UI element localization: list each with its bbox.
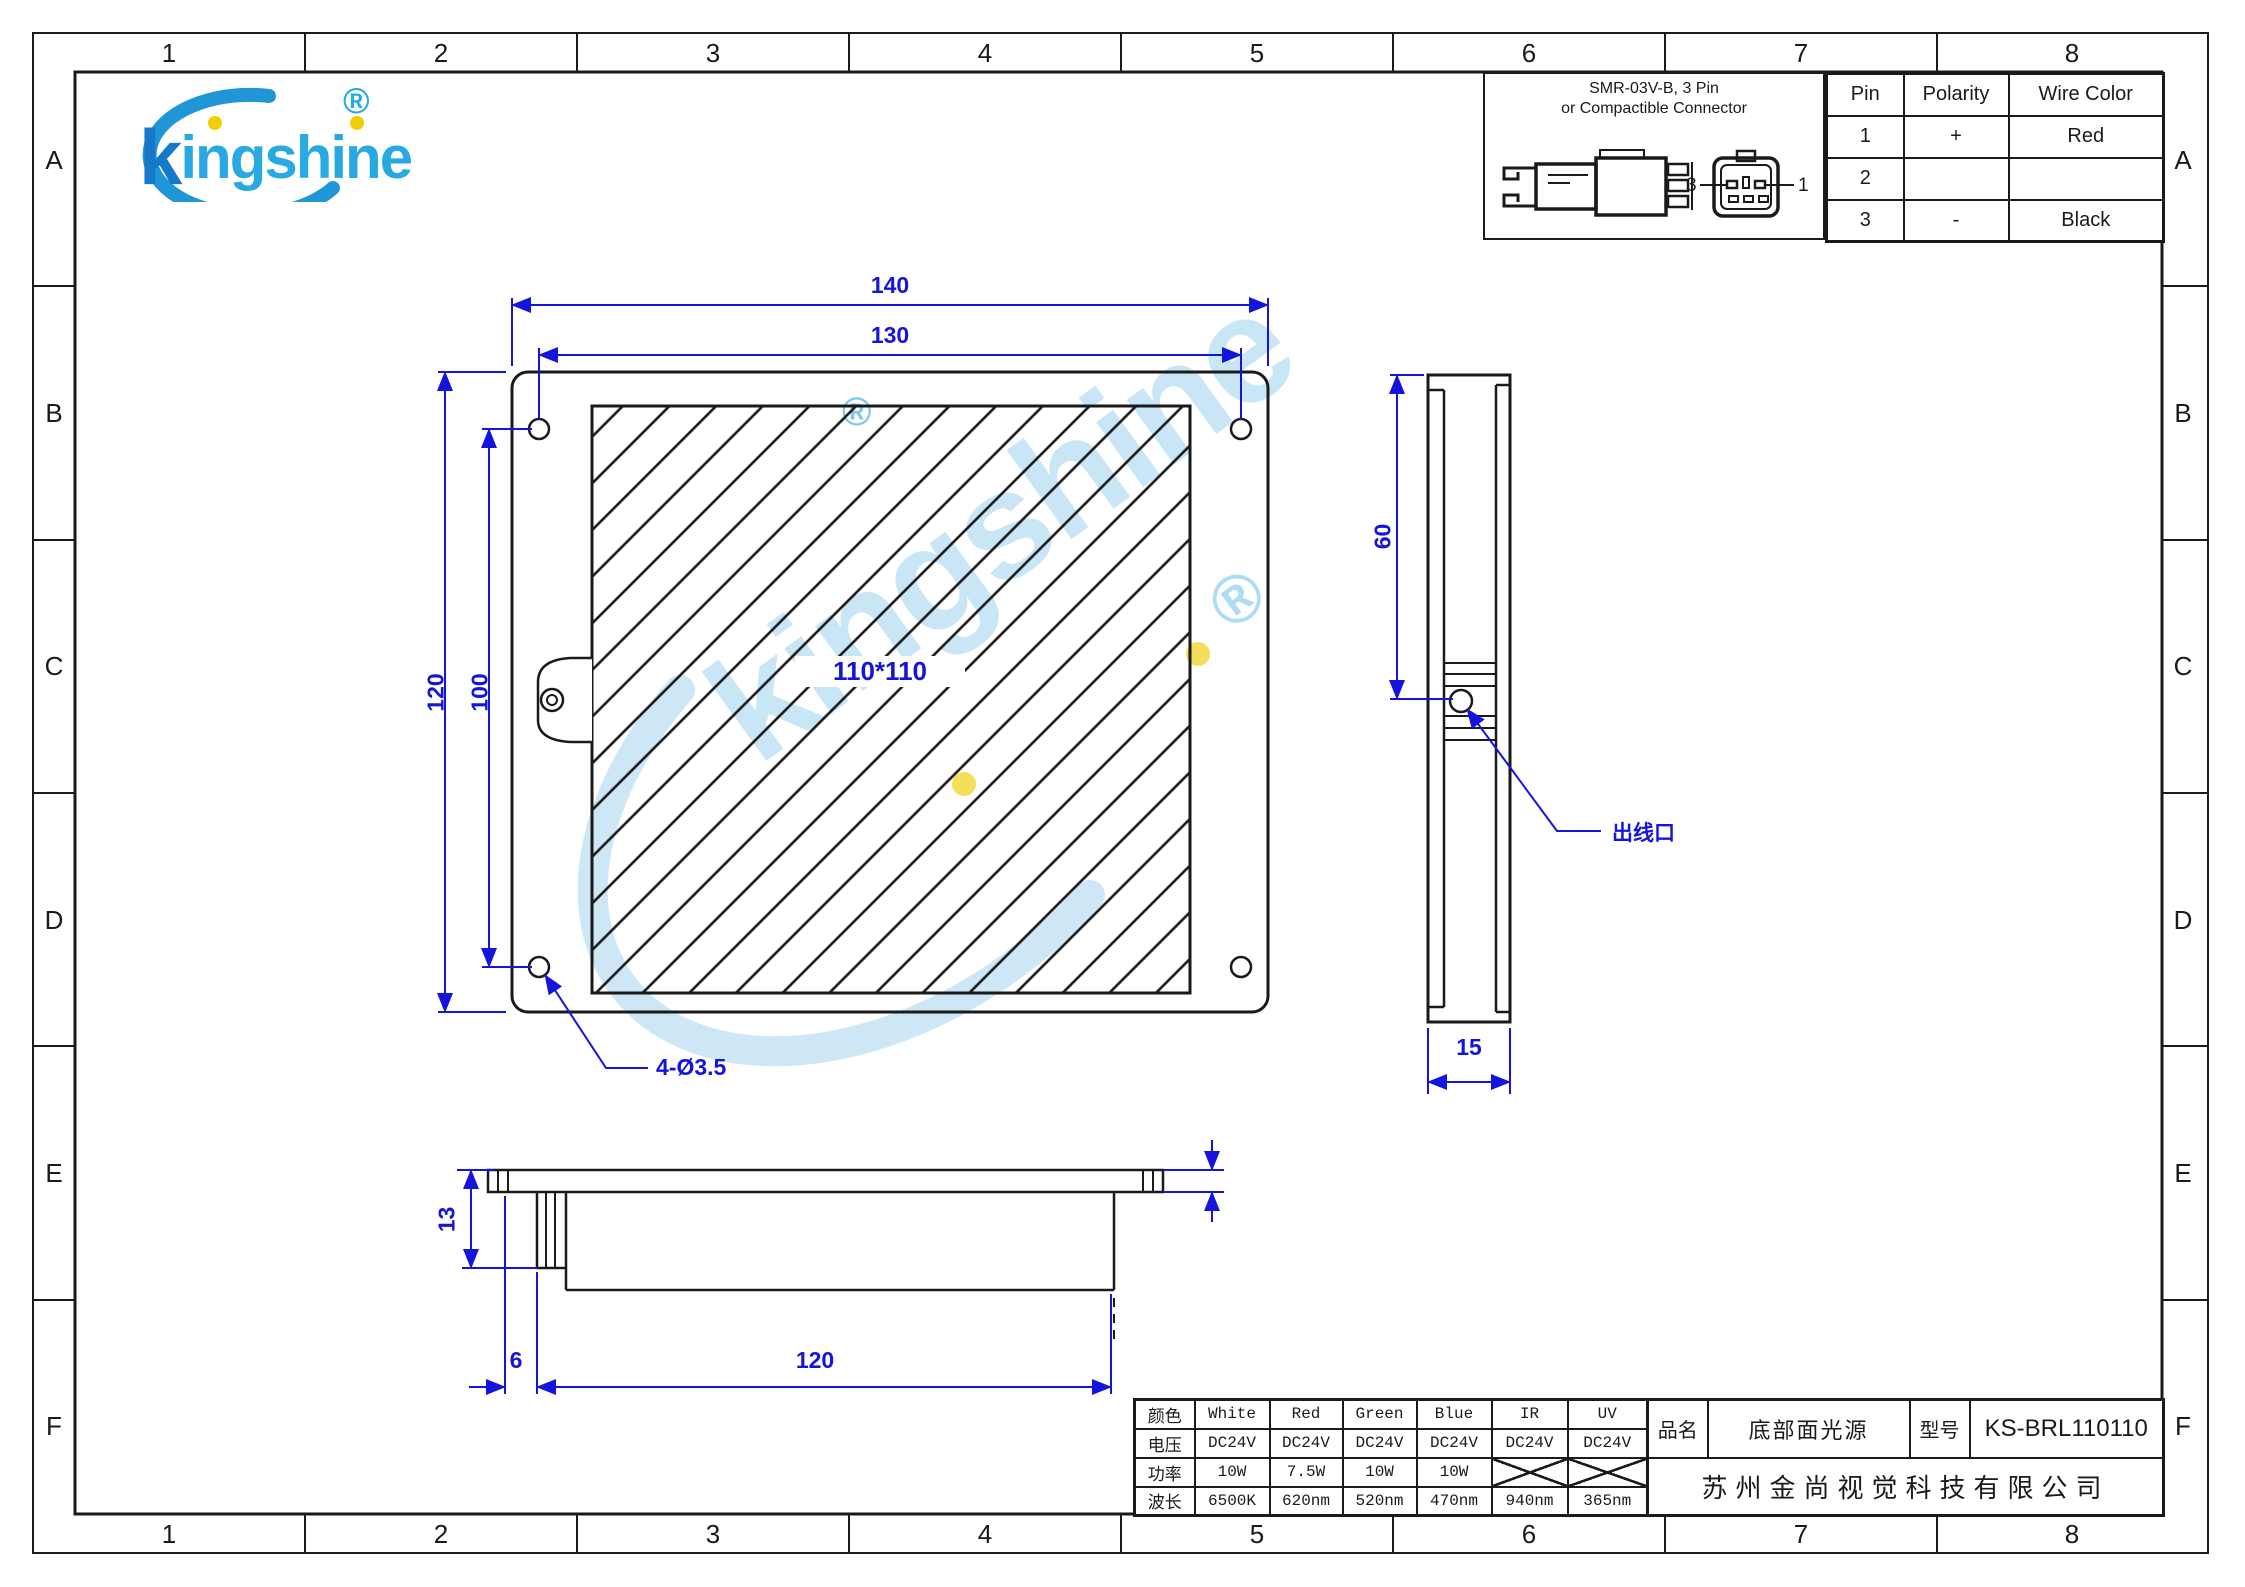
emitting-area-label: 110*110 (795, 656, 965, 687)
cell: DC24V (1568, 1429, 1648, 1458)
pin-header: Pin (1827, 74, 1904, 116)
logo-rest: ingshine (180, 124, 411, 191)
zone-row-label: A (2162, 145, 2204, 176)
cell: UV (1568, 1400, 1648, 1429)
zone-col-label: 1 (129, 1519, 209, 1550)
title-block-company-row: 苏州金尚视觉科技有限公司 (1648, 1458, 2164, 1516)
pin-table: Pin Polarity Wire Color 1 + Red 2 3 - Bl… (1825, 72, 2165, 243)
zone-col-label: 4 (945, 1519, 1025, 1550)
cell: DC24V (1417, 1429, 1492, 1458)
cell: Green (1343, 1400, 1417, 1429)
dim-15-label: 15 (1429, 1034, 1509, 1061)
zone-row-label: D (2162, 905, 2204, 936)
zone-row-label: E (2162, 1158, 2204, 1189)
zone-col-label: 2 (401, 1519, 481, 1550)
logo-i-dot (208, 116, 222, 130)
spec-table: 颜色 White Red Green Blue IR UV 电压 DC24V D… (1133, 1398, 1649, 1517)
zone-col-label: 4 (945, 38, 1025, 69)
connector-title-line2: or Compactible Connector (1485, 100, 1823, 118)
cell: 10W (1195, 1458, 1270, 1487)
company-name: 苏州金尚视觉科技有限公司 (1648, 1458, 2164, 1516)
zone-row-label: A (33, 145, 75, 176)
zone-col-label: 1 (129, 38, 209, 69)
title-block-row: 品名 底部面光源 型号 KS-BRL110110 (1648, 1400, 2164, 1458)
crossed-cell (1492, 1458, 1568, 1487)
spec-label: 波长 (1135, 1487, 1195, 1516)
cell: - (1904, 200, 2009, 242)
logo-i-dot (350, 116, 364, 130)
zone-row-label: E (33, 1158, 75, 1189)
socket-pin3-label: 3 (1686, 175, 1697, 197)
dim-13-label: 13 (434, 1180, 461, 1260)
cell: DC24V (1343, 1429, 1417, 1458)
zone-col-label: 8 (2032, 38, 2112, 69)
dim-60-label: 60 (1370, 497, 1397, 577)
bottom-view (488, 1170, 1163, 1340)
dim-130-label: 130 (840, 322, 940, 349)
cell: DC24V (1195, 1429, 1270, 1458)
spec-label: 功率 (1135, 1458, 1195, 1487)
cell: 6500K (1195, 1487, 1270, 1516)
cell: Blue (1417, 1400, 1492, 1429)
spec-color-row: 颜色 White Red Green Blue IR UV (1135, 1400, 1648, 1429)
zone-row-label: D (33, 905, 75, 936)
spec-wavelength-row: 波长 6500K 620nm 520nm 470nm 940nm 365nm (1135, 1487, 1648, 1516)
cell (1904, 158, 2009, 200)
zone-row-label: B (33, 398, 75, 429)
pin-table-row: 3 - Black (1827, 200, 2164, 242)
title-block: 品名 底部面光源 型号 KS-BRL110110 苏州金尚视觉科技有限公司 (1646, 1398, 2165, 1517)
zone-row-label: B (2162, 398, 2204, 429)
dim-120-label: 120 (423, 653, 450, 733)
cell (2009, 158, 2164, 200)
zone-row-label: C (2162, 651, 2204, 682)
cell: 470nm (1417, 1487, 1492, 1516)
front-view (512, 372, 1268, 1012)
pin-table-header-row: Pin Polarity Wire Color (1827, 74, 2164, 116)
cell: DC24V (1270, 1429, 1343, 1458)
spec-label: 电压 (1135, 1429, 1195, 1458)
cell: 520nm (1343, 1487, 1417, 1516)
zone-col-label: 6 (1489, 1519, 1569, 1550)
zone-col-label: 6 (1489, 38, 1569, 69)
spec-label: 颜色 (1135, 1400, 1195, 1429)
connector-info-box: SMR-03V-B, 3 Pin or Compactible Connecto… (1483, 72, 1825, 240)
cell: Red (1270, 1400, 1343, 1429)
zone-col-label: 7 (1761, 1519, 1841, 1550)
zone-col-label: 5 (1217, 1519, 1297, 1550)
cell: 365nm (1568, 1487, 1648, 1516)
zone-col-label: 8 (2032, 1519, 2112, 1550)
pin-table-row: 2 (1827, 158, 2164, 200)
model-number: KS-BRL110110 (1970, 1400, 2164, 1458)
cell: 940nm (1492, 1487, 1568, 1516)
polarity-header: Polarity (1904, 74, 2009, 116)
cell: 10W (1343, 1458, 1417, 1487)
cell: 3 (1827, 200, 1904, 242)
model-label: 型号 (1910, 1400, 1970, 1458)
cell: White (1195, 1400, 1270, 1429)
zone-col-label: 3 (673, 38, 753, 69)
cell: 620nm (1270, 1487, 1343, 1516)
zone-row-label: F (33, 1411, 75, 1442)
cell: Black (2009, 200, 2164, 242)
kingshine-logo: kingshine ® (95, 82, 415, 202)
cell: 10W (1417, 1458, 1492, 1487)
logo-k: k (139, 113, 180, 201)
cell: 1 (1827, 116, 1904, 158)
zone-col-label: 5 (1217, 38, 1297, 69)
zone-col-label: 7 (1761, 38, 1841, 69)
cell: 7.5W (1270, 1458, 1343, 1487)
zone-row-label: F (2162, 1411, 2204, 1442)
cell: IR (1492, 1400, 1568, 1429)
connector-title-line1: SMR-03V-B, 3 Pin (1485, 80, 1823, 98)
cell: 2 (1827, 158, 1904, 200)
zone-col-label: 2 (401, 38, 481, 69)
cell: Red (2009, 116, 2164, 158)
hole-callout-label: 4-Ø3.5 (656, 1054, 726, 1081)
dim-140-label: 140 (840, 272, 940, 299)
dim-120-bottom-label: 120 (765, 1347, 865, 1374)
dim-6-label: 6 (491, 1347, 541, 1374)
socket-pin1-label: 1 (1798, 175, 1809, 197)
cell: + (1904, 116, 2009, 158)
zone-row-label: C (33, 651, 75, 682)
wire-color-header: Wire Color (2009, 74, 2164, 116)
pin-table-row: 1 + Red (1827, 116, 2164, 158)
cable-outlet-label: 出线口 (1612, 817, 1675, 847)
dim-100-label: 100 (467, 653, 494, 733)
logo-wordmark: kingshine (139, 112, 411, 203)
cell: DC24V (1492, 1429, 1568, 1458)
zone-col-label: 3 (673, 1519, 753, 1550)
spec-voltage-row: 电压 DC24V DC24V DC24V DC24V DC24V DC24V (1135, 1429, 1648, 1458)
crossed-cell (1568, 1458, 1648, 1487)
product-name-label: 品名 (1648, 1400, 1708, 1458)
spec-power-row: 功率 10W 7.5W 10W 10W (1135, 1458, 1648, 1487)
drawing-sheet: { "zones": { "columns": ["1","2","3","4"… (0, 0, 2245, 1587)
product-name: 底部面光源 (1708, 1400, 1910, 1458)
